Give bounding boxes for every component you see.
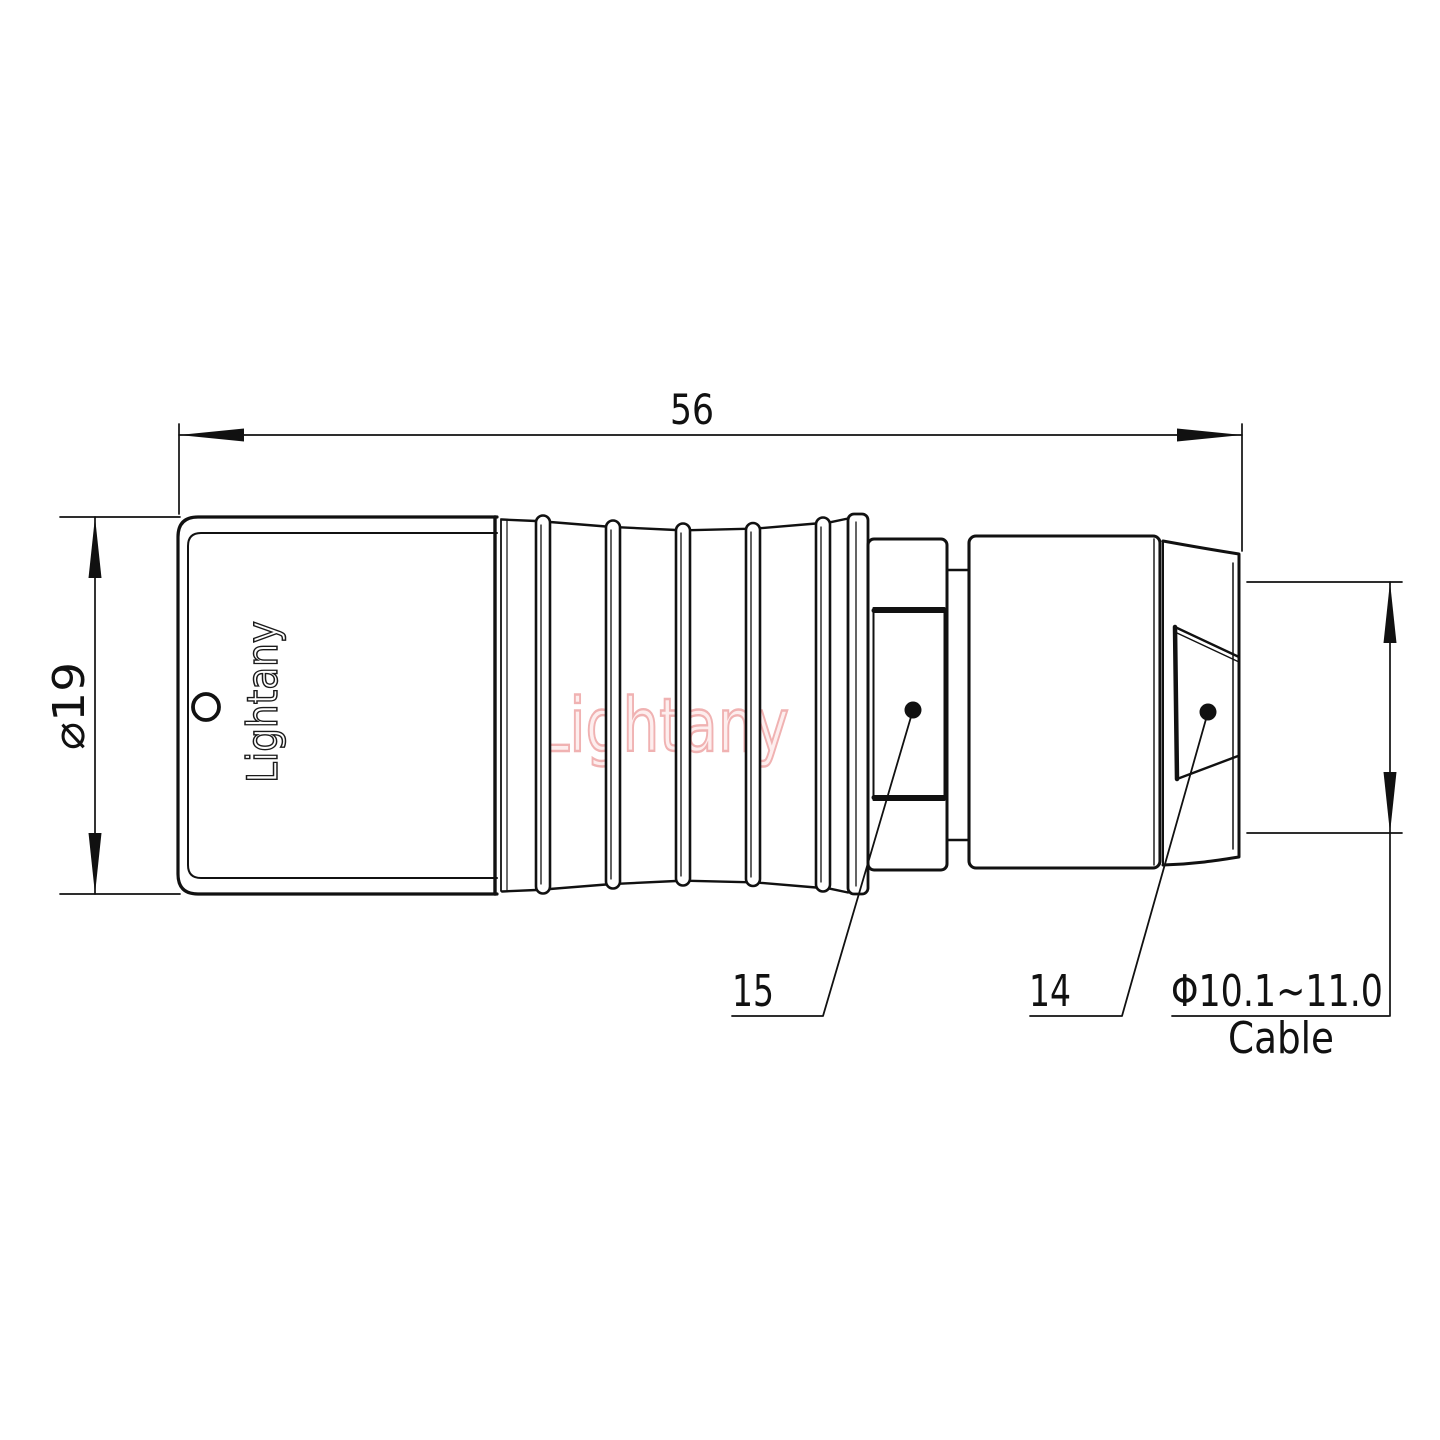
rib-1 bbox=[536, 516, 550, 894]
wrench-flat-bottom-edge bbox=[1177, 756, 1238, 779]
cable-word-label: Cable bbox=[1228, 1013, 1334, 1064]
rib-envelope-bottom bbox=[502, 881, 848, 893]
arrowhead-cable-bottom bbox=[1384, 772, 1397, 833]
rear-block-outline bbox=[969, 536, 1160, 868]
rear-nut bbox=[969, 536, 1239, 868]
shell-outer-outline bbox=[178, 517, 497, 894]
dimension-diameter-19: ⌀19 bbox=[44, 517, 180, 894]
dim-56-value: 56 bbox=[670, 385, 714, 434]
cable-diameter-value: Φ10.1~11.0 bbox=[1171, 966, 1383, 1017]
end-rib bbox=[848, 514, 868, 894]
front-shell bbox=[178, 517, 507, 894]
dimension-cable: Φ10.1~11.0 Cable bbox=[1171, 582, 1402, 1064]
wrench-flat-left-edge bbox=[1175, 627, 1177, 779]
dim-19-value: ⌀19 bbox=[44, 662, 95, 750]
arrowhead-19-top bbox=[89, 517, 102, 578]
part-label-15: 15 bbox=[732, 966, 774, 1017]
dimension-56: 56 bbox=[179, 385, 1242, 551]
brand-marking: Lightany bbox=[238, 621, 287, 783]
neck bbox=[947, 570, 969, 840]
shell-inner-outline bbox=[188, 533, 497, 878]
arrowhead-19-bottom bbox=[89, 833, 102, 894]
wrench-flat-top-edge bbox=[1175, 627, 1239, 657]
arrowhead-cable-top bbox=[1384, 582, 1397, 643]
technical-drawing-canvas: Lightany bbox=[0, 0, 1440, 1440]
arrowhead-56-right bbox=[1177, 429, 1242, 442]
rib-3 bbox=[676, 524, 690, 886]
vent-hole bbox=[193, 694, 219, 720]
part-label-14: 14 bbox=[1029, 966, 1071, 1017]
rib-5 bbox=[816, 518, 830, 892]
arrowhead-56-left bbox=[179, 429, 244, 442]
rib-2 bbox=[606, 521, 620, 889]
connector-drawing: Lightany bbox=[0, 0, 1440, 1440]
rib-4 bbox=[746, 523, 760, 886]
wrench-flat-top-inner-edge bbox=[1177, 633, 1239, 662]
